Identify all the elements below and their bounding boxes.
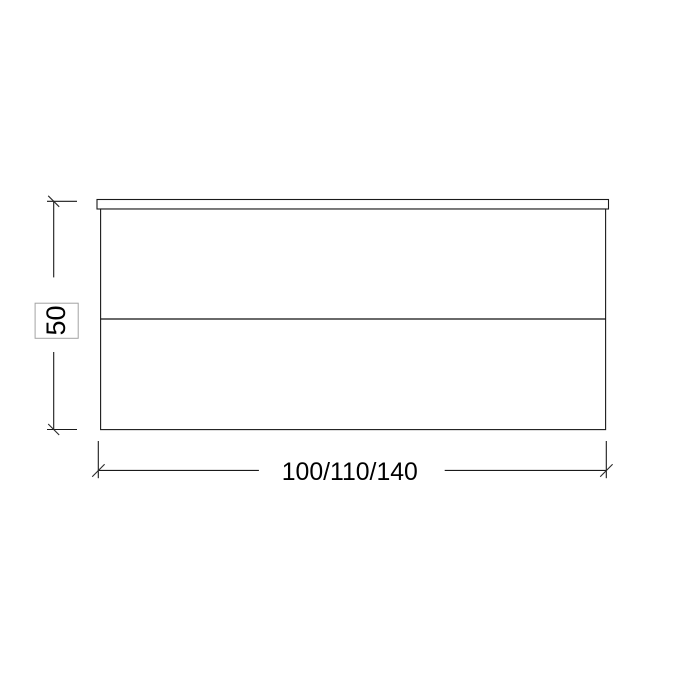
svg-text:50: 50 [41, 305, 71, 335]
svg-text:100/110/140: 100/110/140 [282, 459, 418, 486]
